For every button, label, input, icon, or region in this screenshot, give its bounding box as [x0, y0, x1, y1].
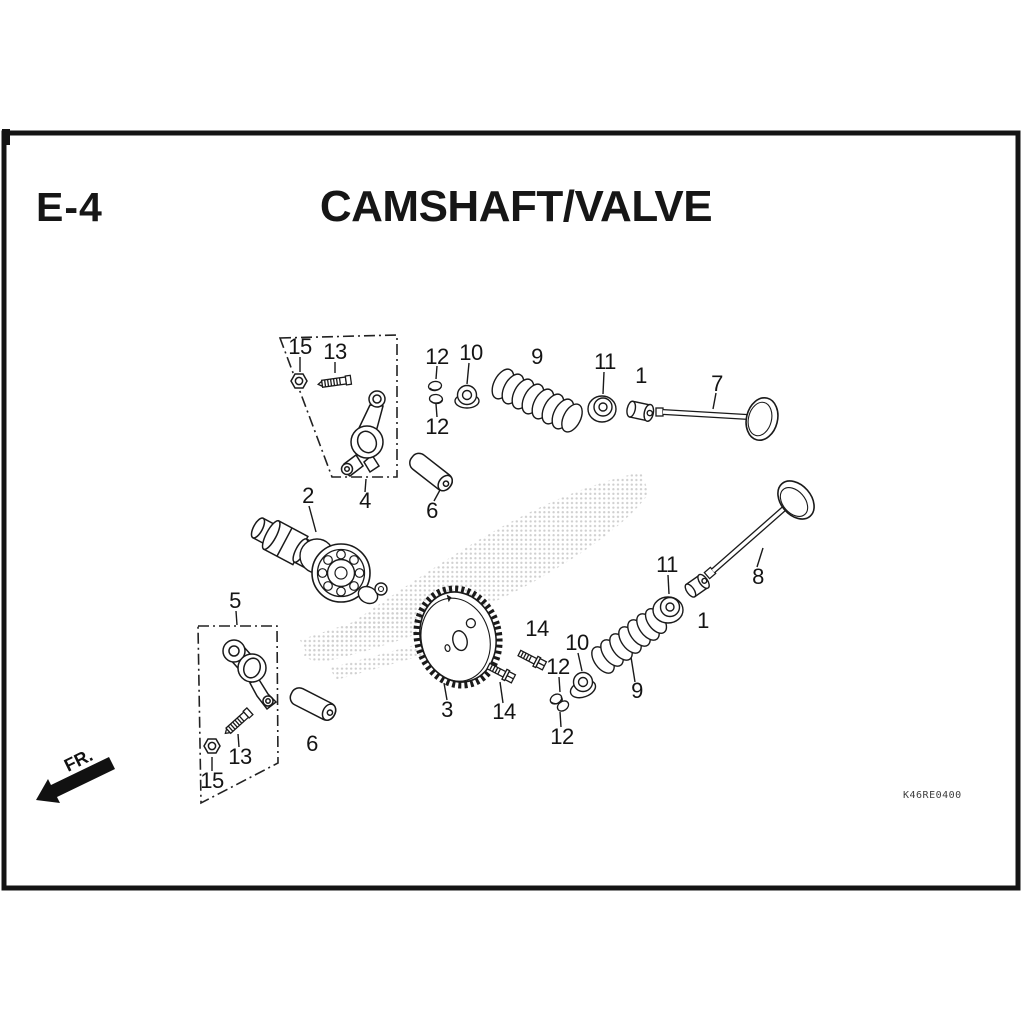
- page-title: CAMSHAFT/VALVE: [316, 182, 716, 232]
- callout-4: 4: [359, 488, 371, 514]
- callout-13-bottom: 13: [228, 744, 251, 770]
- frame-corner-mark: [2, 129, 10, 145]
- callout-6-top: 6: [426, 498, 438, 524]
- callout-9-bottom: 9: [631, 678, 643, 704]
- part-stem-seal-top: [588, 396, 616, 422]
- part-valve-cotters-bottom: [549, 692, 571, 713]
- callout-14-lower: 14: [492, 699, 515, 725]
- part-valve-spring-top: [488, 366, 587, 436]
- part-lock-nut-bottom: [204, 739, 220, 753]
- part-flange-bolt-upper: [517, 648, 547, 671]
- callout-12-top-b: 12: [425, 414, 448, 440]
- part-stem-seal-bottom: [653, 597, 683, 623]
- callout-5: 5: [229, 588, 241, 614]
- part-valve-guide-top: [626, 400, 655, 422]
- callout-11-bottom: 11: [656, 552, 678, 578]
- part-valve-cotters-top: [428, 381, 443, 405]
- callout-6-bottom: 6: [306, 731, 318, 757]
- callout-14-upper: 14: [525, 616, 548, 642]
- catalog-page: FR. E-4 CAMSHAFT/VALVE 15 13 12 10 9 11 …: [0, 0, 1024, 1024]
- part-exhaust-valve: [704, 474, 821, 579]
- callout-10-top: 10: [459, 340, 482, 366]
- part-adjusting-screw-bottom: [222, 708, 253, 737]
- callout-12-top-a: 12: [425, 344, 448, 370]
- page-border-frame: [4, 133, 1018, 888]
- part-adjusting-screw-top: [318, 375, 352, 389]
- callout-3: 3: [441, 697, 453, 723]
- part-rocker-shaft-bottom: [288, 685, 339, 723]
- callout-13-top: 13: [323, 339, 346, 365]
- callout-8: 8: [752, 564, 764, 590]
- callout-1-top: 1: [635, 363, 647, 389]
- callout-7: 7: [711, 371, 723, 397]
- section-code: E-4: [36, 184, 103, 231]
- part-flange-bolt-lower: [486, 661, 516, 684]
- part-rocker-arm-exhaust: [223, 640, 276, 709]
- part-lock-nut-top: [291, 374, 307, 388]
- callout-10-bottom: 10: [565, 630, 588, 656]
- parts-diagram-canvas: FR.: [0, 0, 1024, 1024]
- callout-15-bottom: 15: [200, 768, 223, 794]
- diagram-reference-code: K46RE0400: [903, 790, 962, 801]
- part-camshaft: [247, 512, 387, 607]
- part-intake-valve: [656, 394, 782, 443]
- front-direction-arrow: FR.: [36, 745, 115, 803]
- part-rocker-arm-intake: [342, 391, 386, 476]
- callout-9-top: 9: [531, 344, 543, 370]
- callout-12-bottom-b: 12: [550, 724, 573, 750]
- part-rocker-shaft-top: [407, 450, 456, 494]
- part-spring-seat-top: [455, 386, 479, 409]
- callout-11-top: 11: [594, 349, 616, 375]
- callout-12-bottom-a: 12: [546, 654, 569, 680]
- part-spring-seat-bottom: [568, 673, 598, 701]
- callout-15-top: 15: [288, 334, 311, 360]
- callout-2: 2: [302, 483, 314, 509]
- callout-1-bottom: 1: [697, 608, 709, 634]
